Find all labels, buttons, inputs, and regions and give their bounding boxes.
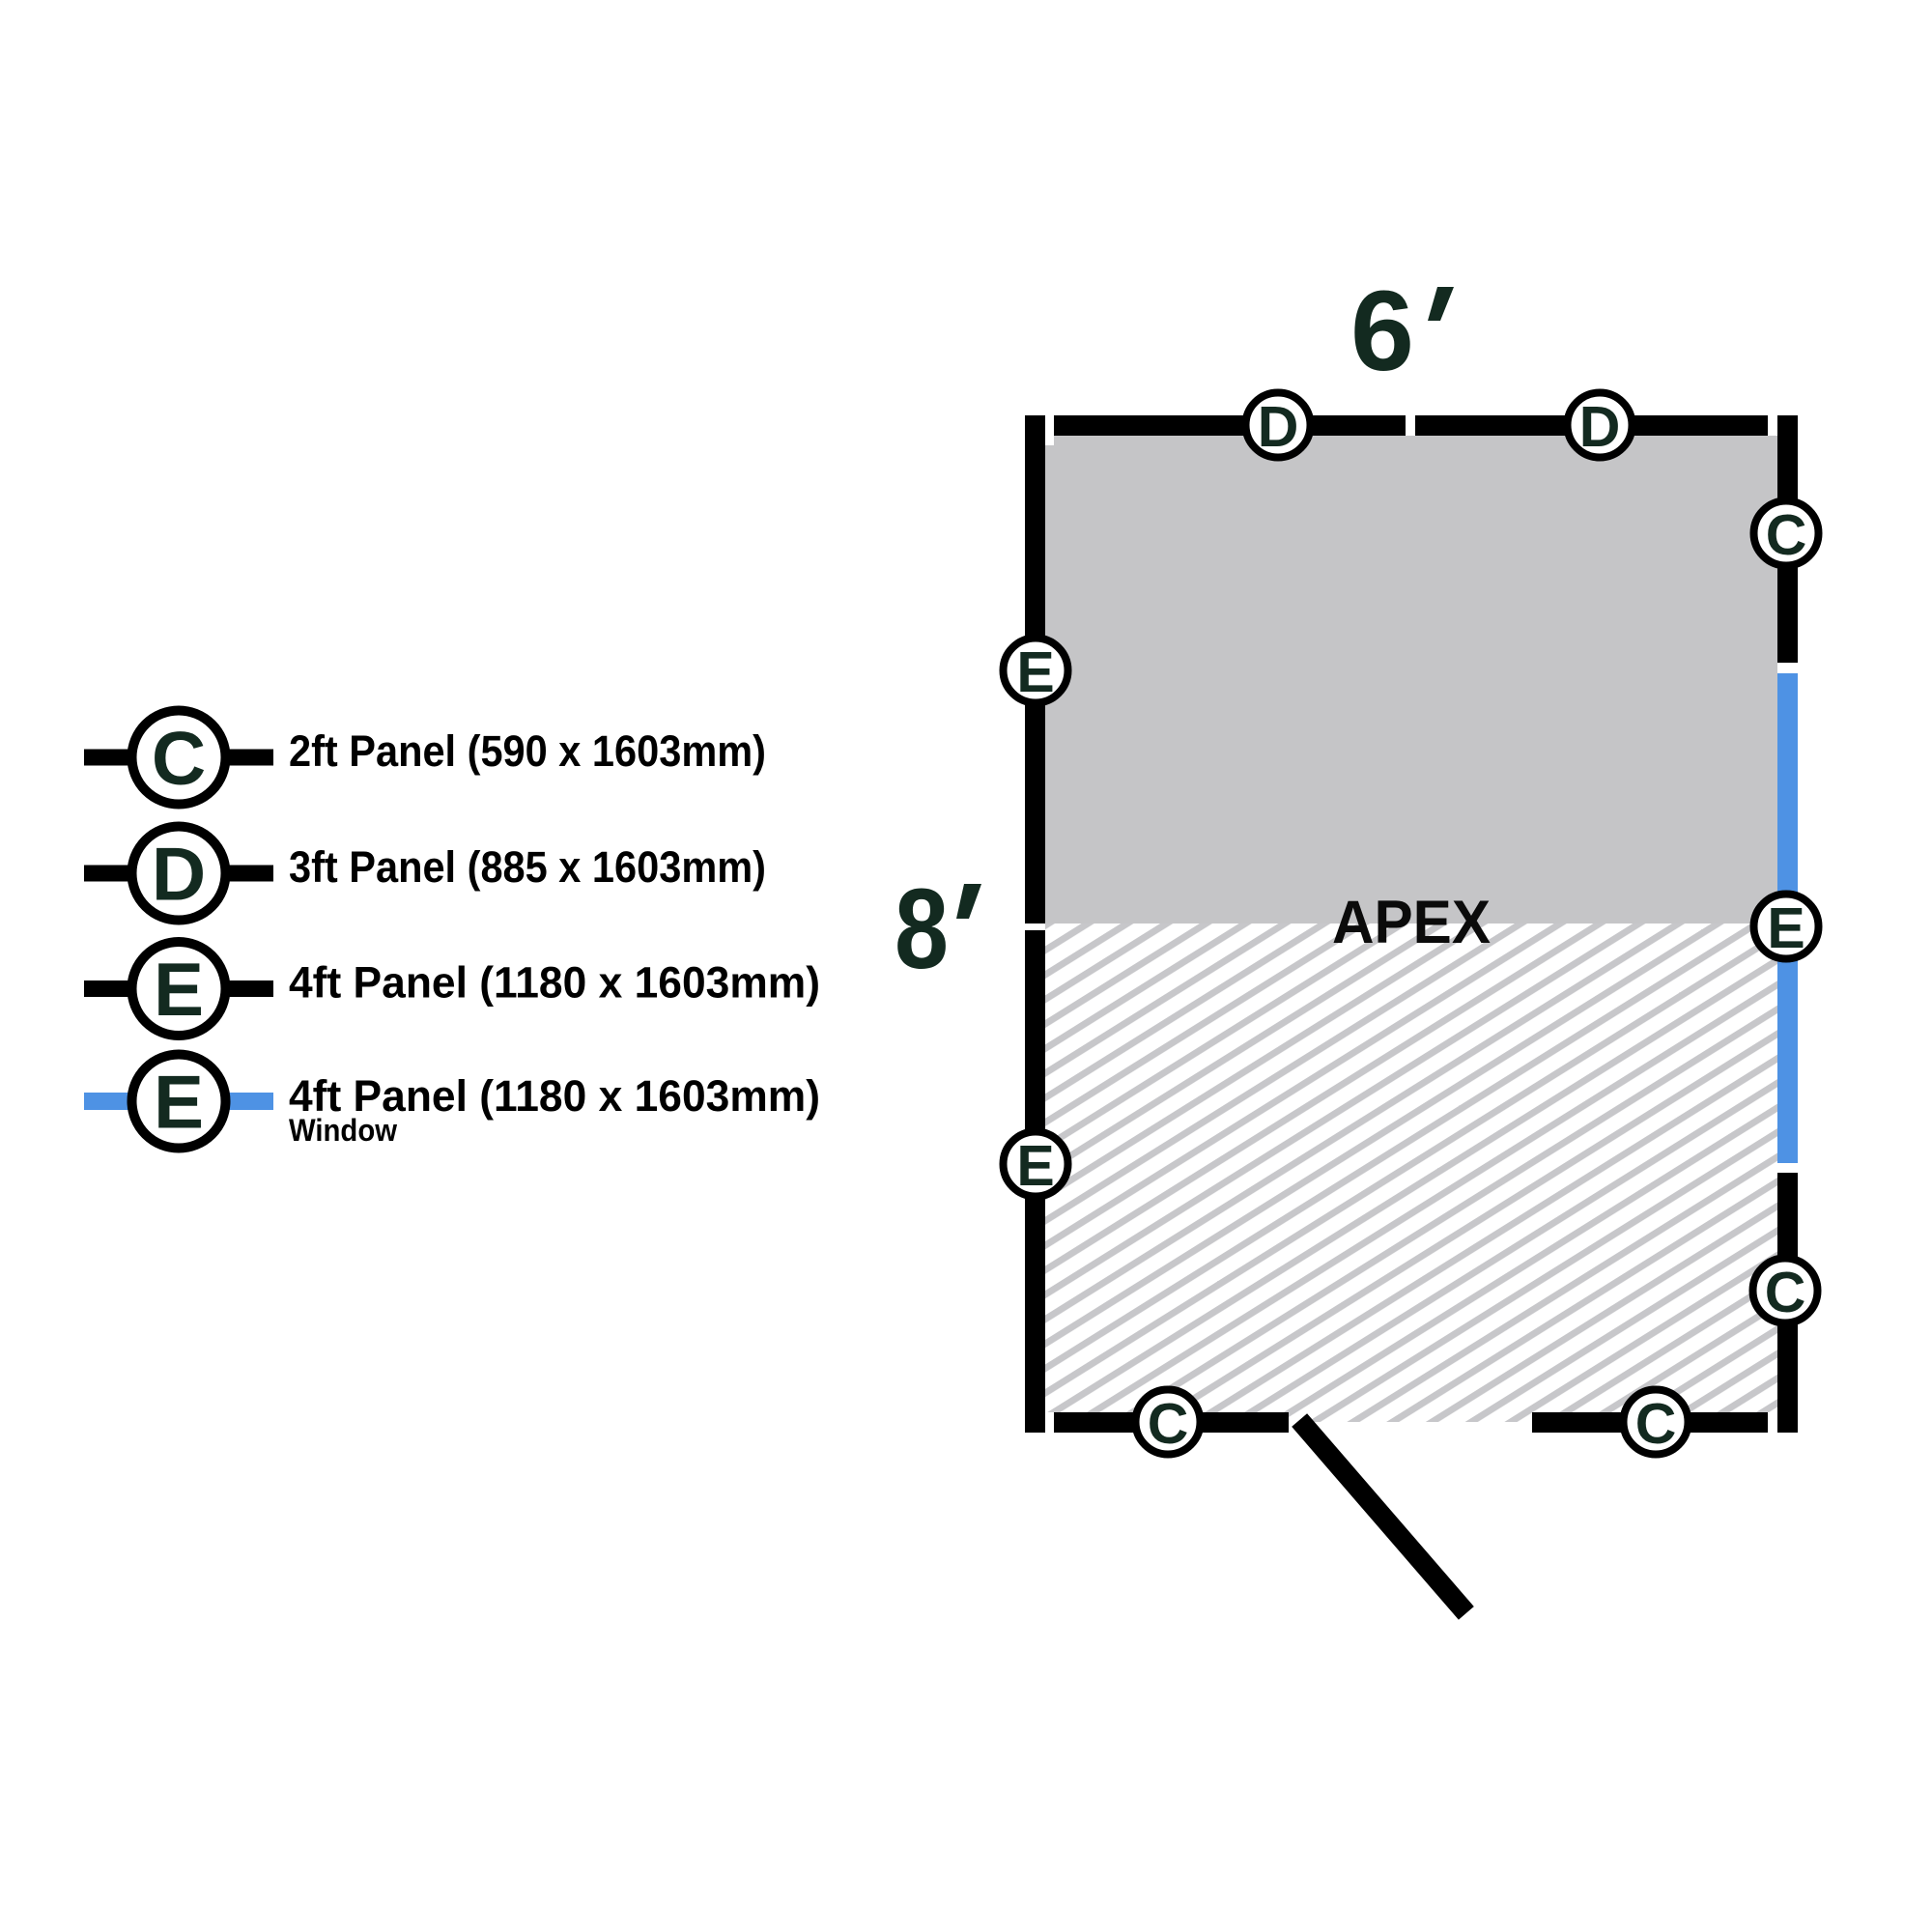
svg-text:C: C [1765,1261,1806,1324]
svg-text:2ft Panel (590 x 1603mm): 2ft Panel (590 x 1603mm) [289,726,766,776]
svg-text:C: C [152,716,206,801]
svg-text:E: E [1767,896,1804,960]
svg-text:D: D [152,832,206,917]
svg-text:3ft Panel (885 x 1603mm): 3ft Panel (885 x 1603mm) [289,842,766,892]
svg-text:D: D [1579,395,1621,459]
svg-text:Window: Window [289,1113,397,1148]
svg-text:E: E [1016,1134,1054,1198]
svg-text:C: C [1635,1392,1677,1456]
svg-text:E: E [1016,640,1054,704]
svg-text:C: C [1148,1392,1189,1456]
svg-text:8: 8 [895,866,949,993]
svg-text:4ft Panel (1180 x 1603mm): 4ft Panel (1180 x 1603mm) [289,958,820,1008]
svg-text:D: D [1258,395,1299,459]
svg-text:C: C [1766,503,1807,567]
svg-text:E: E [154,947,204,1032]
svg-text:E: E [154,1060,204,1145]
svg-text:6: 6 [1350,268,1414,395]
svg-text:APEX: APEX [1332,889,1491,956]
